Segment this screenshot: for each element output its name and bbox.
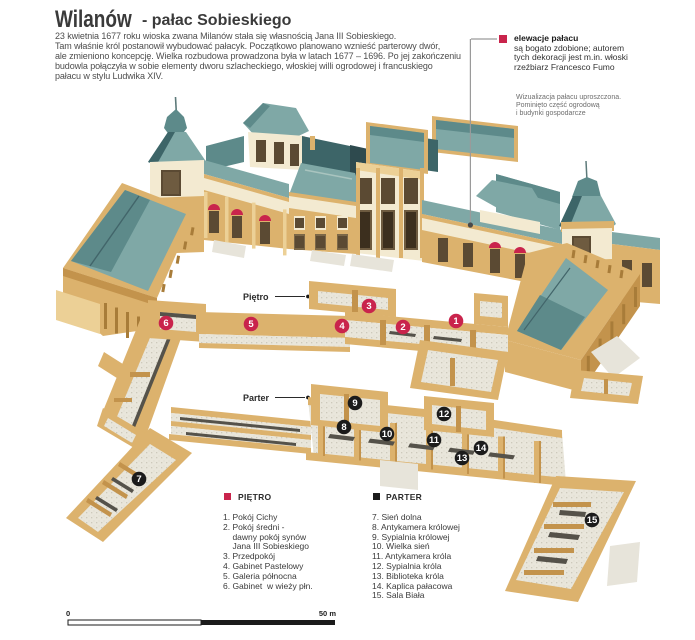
svg-text:2: 2 (400, 322, 405, 333)
svg-text:1: 1 (453, 316, 459, 327)
svg-text:5: 5 (248, 319, 254, 330)
svg-text:6: 6 (163, 318, 168, 329)
svg-text:3: 3 (366, 301, 371, 312)
svg-text:11: 11 (429, 435, 440, 446)
svg-text:Parter: Parter (243, 393, 270, 403)
svg-text:0: 0 (66, 609, 70, 618)
svg-text:Piętro: Piętro (243, 292, 269, 302)
svg-text:8: 8 (341, 422, 346, 433)
svg-text:13: 13 (457, 453, 468, 464)
svg-text:14: 14 (476, 443, 487, 454)
svg-text:15: 15 (587, 515, 598, 526)
svg-text:4: 4 (339, 321, 345, 332)
svg-text:12: 12 (439, 409, 450, 420)
svg-text:7: 7 (136, 474, 141, 485)
svg-text:10: 10 (382, 429, 393, 440)
svg-text:50 m: 50 m (319, 609, 336, 618)
svg-text:9: 9 (352, 398, 357, 409)
